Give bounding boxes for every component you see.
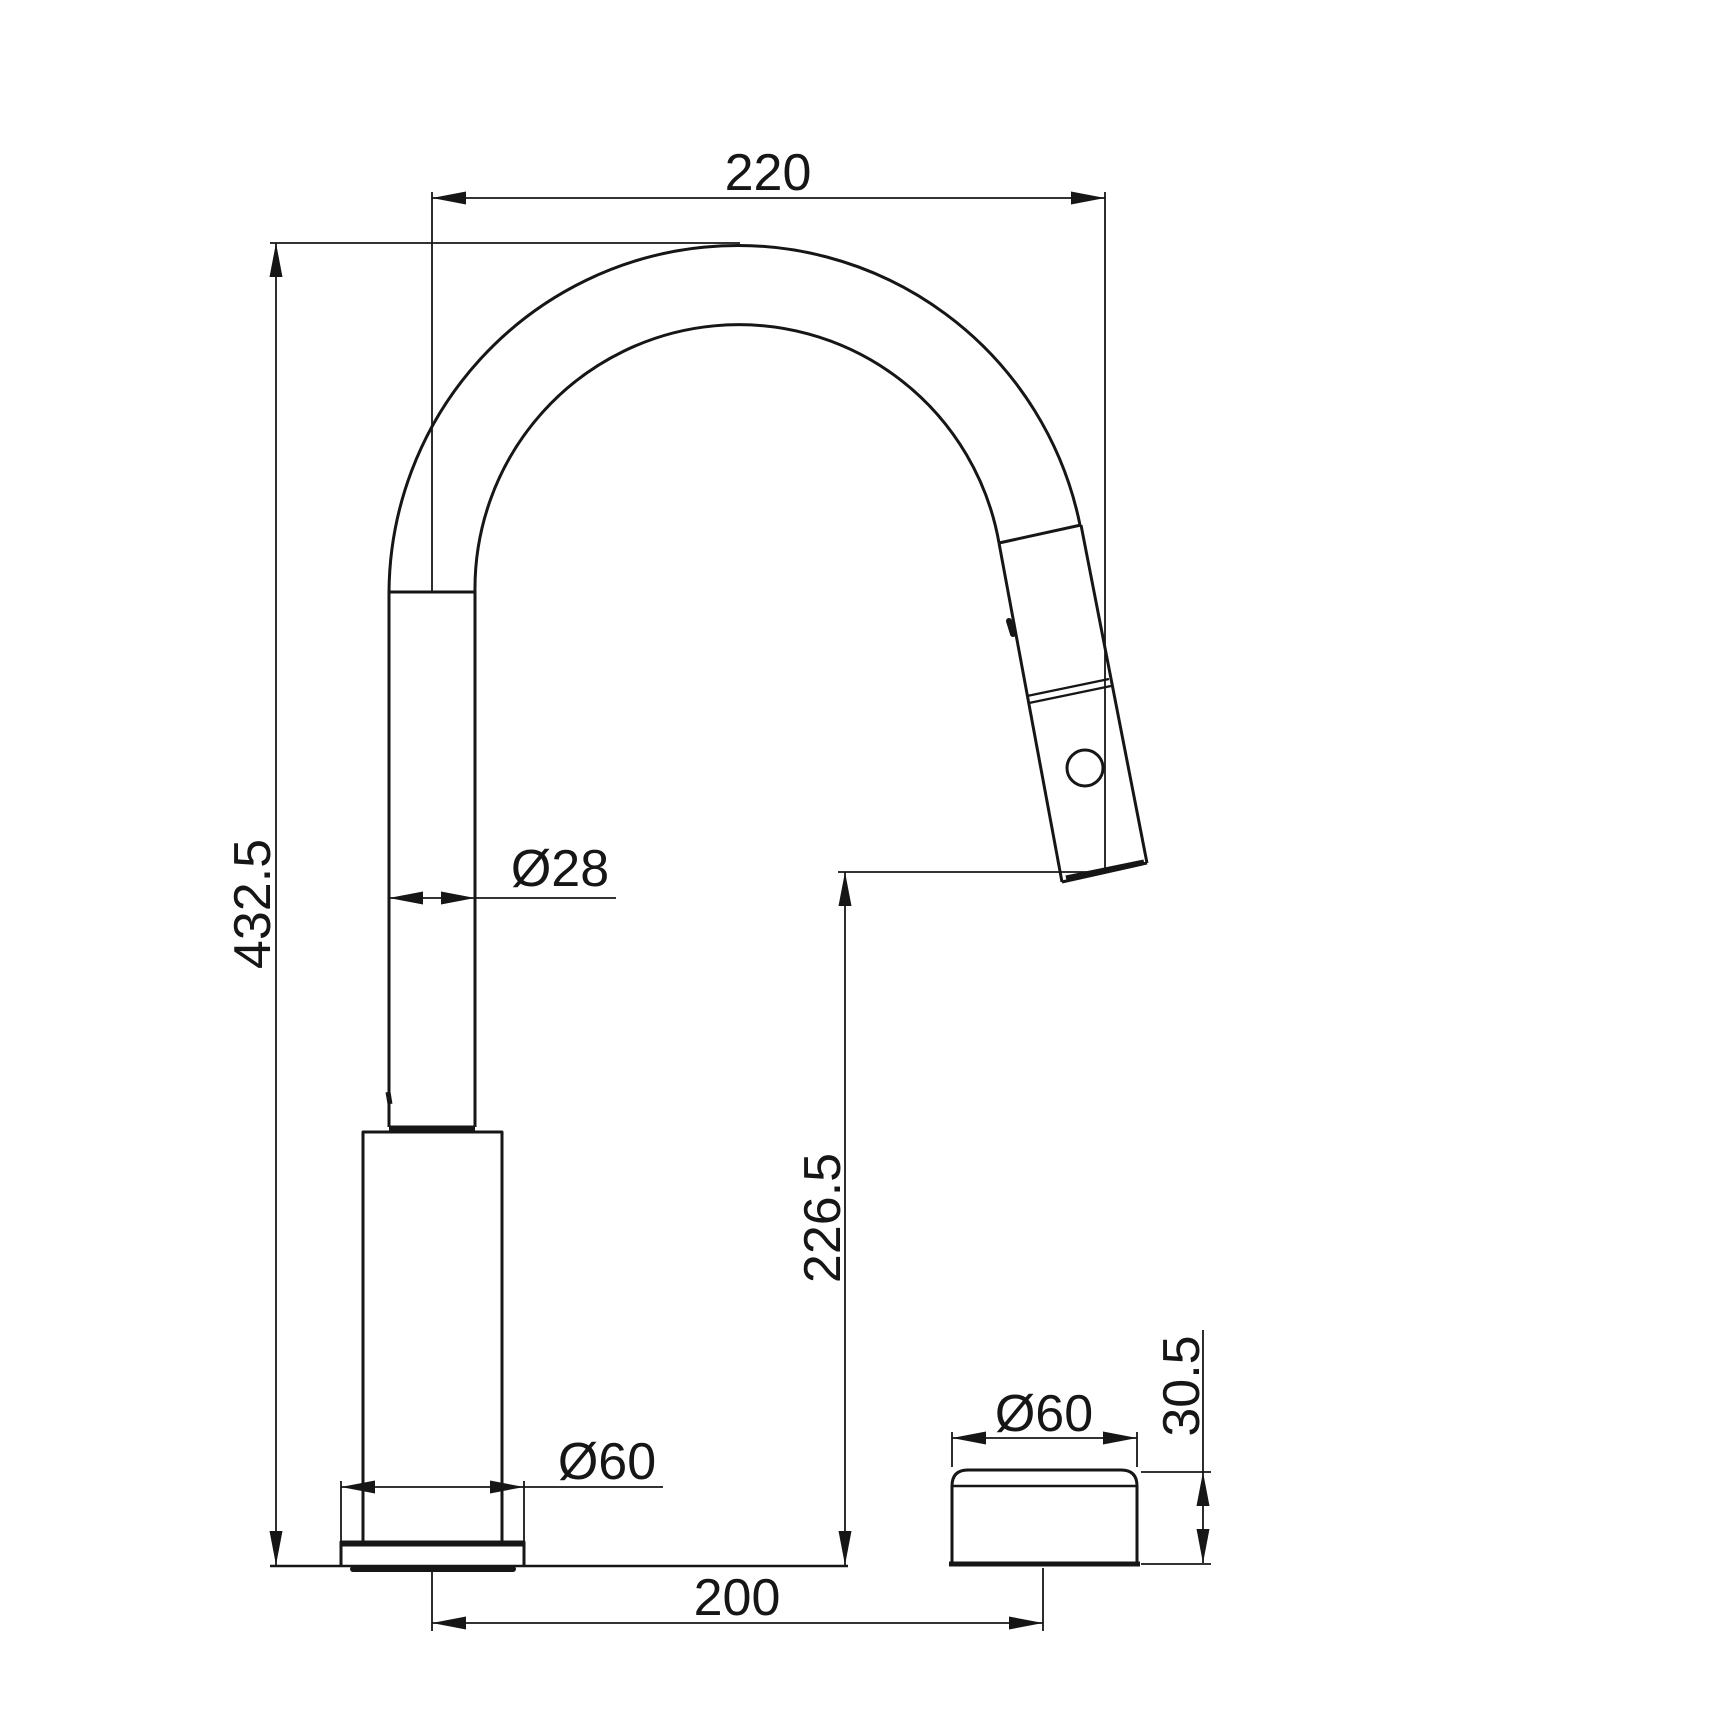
spray-mode-button <box>1067 750 1103 786</box>
arrow-left <box>432 1617 466 1630</box>
arrow-left <box>389 892 423 905</box>
dim-label-spout-reach: 220 <box>725 144 812 202</box>
arrow-left <box>432 192 466 205</box>
arrow-up <box>839 872 852 906</box>
head-collar-line <box>999 525 1081 543</box>
head-seam-line-lower <box>1029 686 1111 703</box>
control-knob <box>949 1470 1140 1564</box>
dim-center-distance: 200 <box>432 1568 1043 1631</box>
dim-label-center-distance: 200 <box>694 1569 781 1627</box>
arrow-right <box>1009 1617 1043 1630</box>
head-left-wall <box>999 543 1062 882</box>
dim-knob-height: 30.5 <box>1141 1330 1211 1564</box>
dim-label-knob-height: 30.5 <box>1153 1335 1211 1436</box>
dim-label-total-height: 432.5 <box>224 839 282 969</box>
arrow-down <box>839 1531 852 1565</box>
faucet-body <box>270 246 1147 1569</box>
dim-outlet-height: 226.5 <box>794 872 1100 1565</box>
dim-total-height: 432.5 <box>224 243 740 1565</box>
arrow-right <box>441 892 475 905</box>
arrow-up <box>270 243 283 277</box>
arrow-right <box>1103 1432 1137 1445</box>
arrow-right <box>1071 192 1105 205</box>
riser-weld-tick <box>388 1092 390 1104</box>
dim-spout-reach: 220 <box>432 144 1105 868</box>
faucet-dimension-drawing: 220 432.5 Ø28 226.5 <box>0 0 1733 1733</box>
dim-knob-diameter: Ø60 <box>952 1385 1137 1467</box>
arrow-up <box>1197 1472 1210 1506</box>
spout-outer-arc <box>389 246 1080 592</box>
head-seam-line-upper <box>1027 679 1109 696</box>
arrow-left <box>341 1481 375 1494</box>
knob-outline <box>952 1470 1137 1563</box>
drawing-sheet: 220 432.5 Ø28 226.5 <box>0 0 1733 1733</box>
dim-label-knob-diameter: Ø60 <box>995 1385 1093 1443</box>
head-side-nub <box>1009 621 1013 634</box>
spray-head <box>999 525 1147 882</box>
arrow-down <box>270 1531 283 1565</box>
dim-tube-diameter: Ø28 <box>389 840 616 905</box>
dim-label-tube-diameter: Ø28 <box>511 840 609 898</box>
arrow-down <box>1197 1529 1210 1563</box>
dim-label-outlet-height: 226.5 <box>794 1153 852 1283</box>
dim-label-base-diameter: Ø60 <box>558 1433 656 1491</box>
arrow-right <box>490 1481 524 1494</box>
column-body <box>363 1132 502 1542</box>
spout-inner-arc <box>475 325 999 592</box>
head-right-wall <box>1081 525 1147 863</box>
arrow-left <box>952 1432 986 1445</box>
